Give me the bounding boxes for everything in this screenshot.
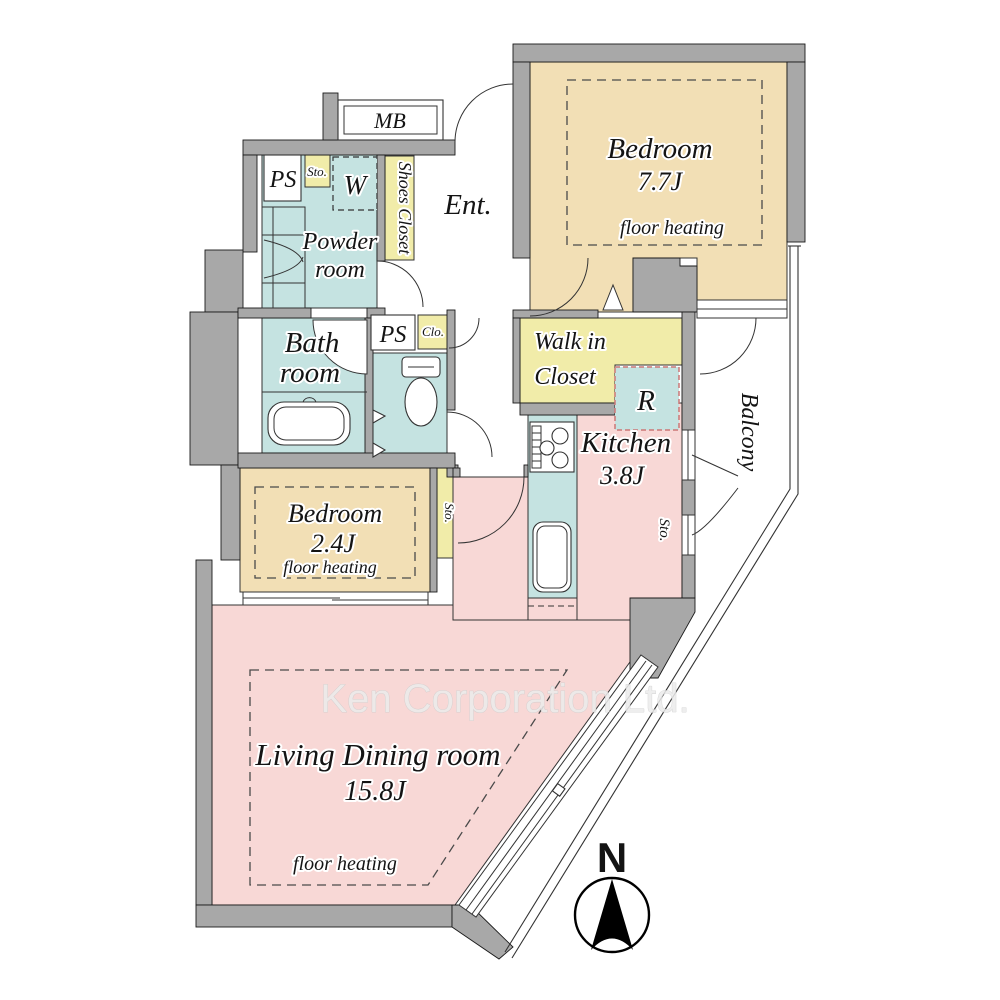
label-bath-1: Bath <box>285 327 340 359</box>
label-living-size: 15.8J <box>344 776 407 807</box>
label-bedroom2-size: 2.4J <box>311 529 357 558</box>
label-clo: Clo. <box>422 324 444 339</box>
label-living-name: Living Dining room <box>254 737 500 772</box>
wall-bedroom2-east <box>430 468 437 592</box>
label-bedroom1-note: floor heating <box>620 217 724 239</box>
wall-bedroom1-left <box>513 62 530 258</box>
label-bedroom1-name: Bedroom <box>607 133 712 165</box>
wall-mb-stub <box>323 93 338 140</box>
sink-outer <box>533 522 571 592</box>
label-sto-upper: Sto. <box>307 164 327 179</box>
label-kitchen-name: Kitchen <box>580 427 671 459</box>
wall-toilet-east <box>447 310 455 410</box>
label-kitchen-size: 3.8J <box>599 461 646 490</box>
wall-bedroom1-right <box>787 62 805 242</box>
wall-hall-south-right <box>524 465 528 477</box>
toilet-bowl <box>405 378 437 426</box>
balcony-door-arc <box>700 318 756 374</box>
label-bedroom2-note: floor heating <box>283 557 377 577</box>
wall-left-4 <box>221 465 240 560</box>
compass-north-label: N <box>597 834 627 881</box>
wall-wic-west <box>513 318 520 403</box>
toilet-door-arc <box>447 412 492 457</box>
wall-kitchen-east-1 <box>682 312 695 430</box>
stove <box>530 422 574 472</box>
label-bath-2: room <box>280 357 340 389</box>
hall-floor <box>453 477 528 620</box>
wall-kitchen-east-3 <box>682 555 695 598</box>
balcony-leader-1 <box>692 455 738 476</box>
wall-left-5 <box>196 560 212 905</box>
label-balcony: Balcony <box>736 393 762 472</box>
wall-mid-h1 <box>238 308 311 318</box>
label-powder-2: room <box>315 257 365 283</box>
wall-bottom <box>196 905 452 927</box>
powder-door-arc <box>377 261 423 307</box>
wall-bath-bedroom2 <box>238 453 455 468</box>
wall-left-1 <box>243 155 257 252</box>
label-ps-mid: PS <box>379 322 407 348</box>
wall-left-2 <box>205 250 243 312</box>
label-bedroom1-size: 7.7J <box>638 167 684 196</box>
wall-wic-top <box>513 310 598 318</box>
label-bedroom2-name: Bedroom <box>288 499 382 528</box>
balcony-leader-2 <box>692 488 738 535</box>
wall-bedroom1-top <box>513 44 805 62</box>
wall-left-3 <box>190 312 238 465</box>
label-shoes-closet: Shoes Closet <box>395 162 415 255</box>
stove-burner-2 <box>552 452 568 468</box>
under-counter-floor <box>528 598 577 620</box>
label-entrance: Ent. <box>443 189 492 221</box>
wall-bottom-diagonal <box>452 905 513 959</box>
compass: N <box>575 834 649 952</box>
label-washer: W <box>344 170 369 200</box>
label-ps-upper: PS <box>269 167 297 193</box>
label-living-note: floor heating <box>293 853 397 875</box>
wall-kitchen-east-2 <box>682 480 695 515</box>
floor-plan-canvas: Ken Corporation Ltd. MB PS Sto. W Shoes … <box>0 0 1000 1000</box>
entrance-door-arc <box>455 84 513 142</box>
floor-plan: Ken Corporation Ltd. MB PS Sto. W Shoes … <box>0 0 1000 1000</box>
stove-burner-3 <box>540 441 554 455</box>
label-wic-1: Walk in <box>534 329 606 355</box>
balcony-leaders <box>692 455 738 535</box>
label-mb: MB <box>373 108 406 133</box>
wall-top-left <box>243 140 455 155</box>
wall-sto-stub <box>453 468 460 477</box>
label-wic-2: Closet <box>534 364 597 390</box>
stove-burner-1 <box>552 428 568 444</box>
label-sto-kitchen: Sto. <box>656 519 672 542</box>
label-powder-1: Powder <box>302 229 378 255</box>
label-sto-bedroom: Sto. <box>442 503 457 523</box>
wall-kitchen-top <box>520 403 615 415</box>
watermark: Ken Corporation Ltd. <box>320 677 689 721</box>
label-fridge: R <box>636 385 655 417</box>
wall-powder-east <box>377 155 385 261</box>
wall-bedroom1-chunk <box>633 258 697 312</box>
